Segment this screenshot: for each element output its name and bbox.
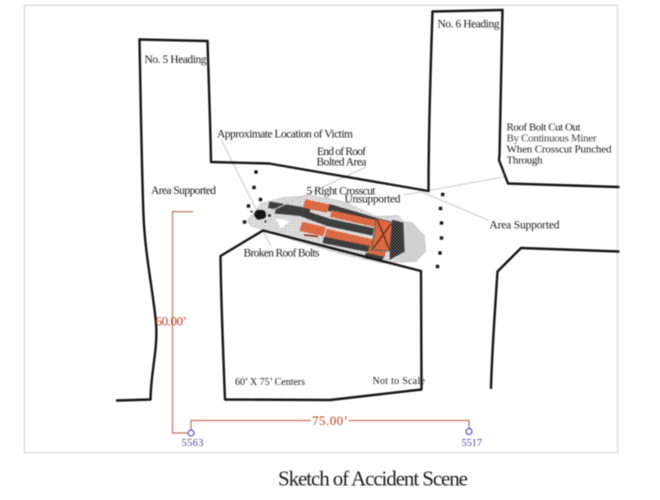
svg-text:60’ X 75’ Centers: 60’ X 75’ Centers <box>235 377 305 388</box>
svg-text:5517: 5517 <box>462 438 483 449</box>
svg-text:Broken Roof Bolts: Broken Roof Bolts <box>244 248 321 260</box>
svg-text:Not to Scale: Not to Scale <box>373 376 426 387</box>
svg-text:Unsupported: Unsupported <box>345 194 401 206</box>
svg-text:Bolted Area: Bolted Area <box>317 157 367 169</box>
svg-text:Through: Through <box>507 155 544 167</box>
svg-text:Approximate Location of Victim: Approximate Location of Victim <box>217 129 353 141</box>
svg-text:Area Supported: Area Supported <box>151 185 216 197</box>
svg-text:60.00’: 60.00’ <box>156 314 188 329</box>
svg-text:Area Supported: Area Supported <box>490 220 560 232</box>
svg-text:No. 6 Heading: No. 6 Heading <box>438 19 500 31</box>
svg-text:Sketch of Accident Scene: Sketch of Accident Scene <box>278 467 468 491</box>
svg-text:75.00’: 75.00’ <box>312 413 348 428</box>
svg-text:No. 5 Heading: No. 5 Heading <box>145 54 207 66</box>
svg-text:5563: 5563 <box>182 438 204 449</box>
